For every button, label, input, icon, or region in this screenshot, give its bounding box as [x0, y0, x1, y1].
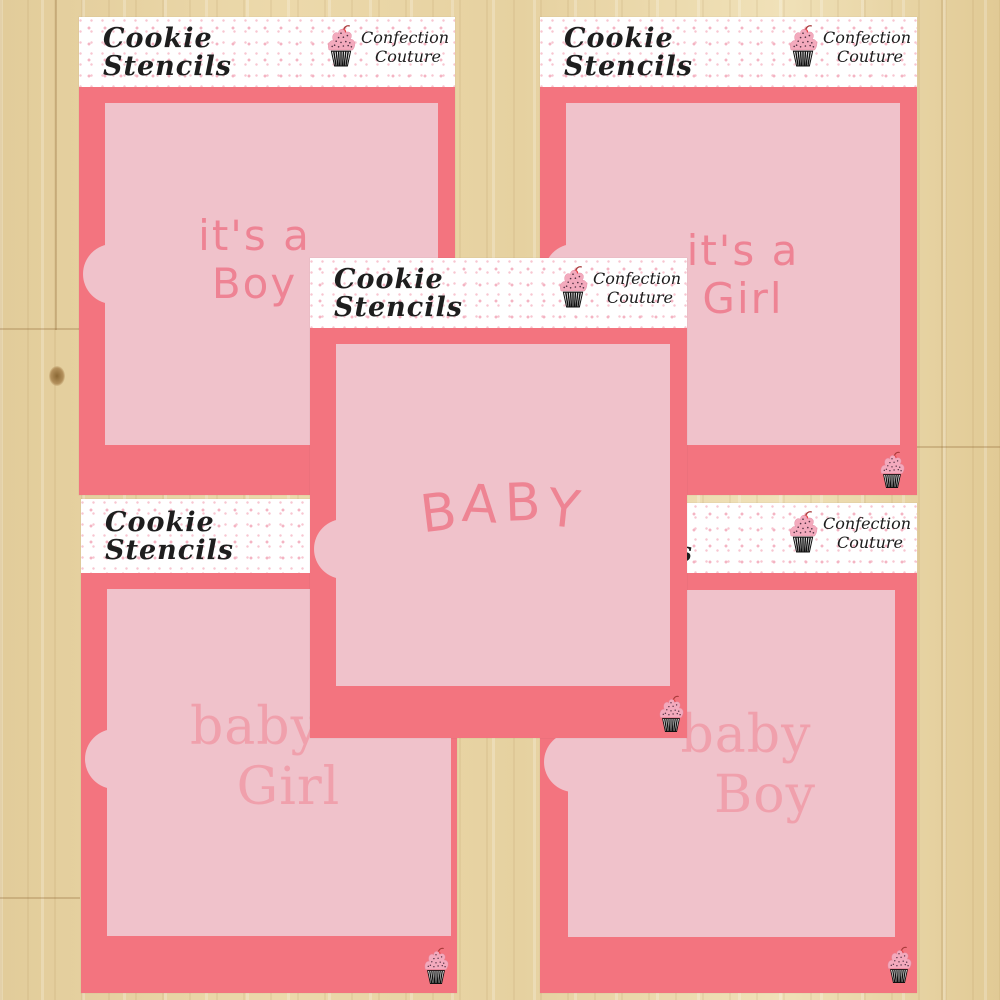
- brand-line-2: Stencils: [334, 294, 463, 322]
- brand-line-2: Stencils: [105, 537, 234, 565]
- cupcake-icon: [325, 22, 357, 70]
- logo-line-1: Confection: [593, 269, 681, 288]
- confection-couture-logo: Confection Couture: [325, 20, 449, 70]
- logo-line-1: Confection: [361, 28, 449, 47]
- stencil-design-text: BABY: [336, 480, 670, 536]
- design-line: BABY: [336, 480, 670, 536]
- brand-line-2: Stencils: [103, 53, 232, 81]
- stencil-package-baby: Cookie Stencils Con: [310, 258, 687, 738]
- package-header: Cookie Stencils Con: [540, 17, 917, 87]
- design-line: Boy: [598, 765, 932, 825]
- design-line: Girl: [122, 757, 455, 817]
- wood-seam: [55, 0, 57, 330]
- confection-couture-logo: Confection Couture: [787, 506, 911, 556]
- cupcake-icon: [557, 263, 589, 311]
- cupcake-icon: [878, 448, 906, 492]
- logo-text: Confection Couture: [823, 20, 911, 66]
- wood-seam: [0, 328, 80, 330]
- design-line: it's a: [88, 212, 421, 260]
- logo-line-1: Confection: [823, 514, 911, 533]
- logo-line-2: Couture: [823, 533, 911, 552]
- logo-text: Confection Couture: [593, 261, 681, 307]
- logo-line-2: Couture: [361, 47, 449, 66]
- brand-cookie-stencils: Cookie Stencils: [103, 25, 232, 81]
- package-header: Cookie Stencils Con: [310, 258, 687, 328]
- cupcake-icon: [885, 943, 913, 987]
- confection-couture-logo: Confection Couture: [557, 261, 681, 311]
- confection-couture-logo: Confection Couture: [787, 20, 911, 70]
- logo-text: Confection Couture: [823, 506, 911, 552]
- brand-cookie-stencils: Cookie Stencils: [564, 25, 693, 81]
- cupcake-icon: [657, 692, 685, 736]
- logo-line-2: Couture: [593, 288, 681, 307]
- cupcake-icon: [787, 508, 819, 556]
- brand-line-2: Stencils: [564, 53, 693, 81]
- brand-line-1: Cookie: [105, 509, 234, 537]
- brand-line-1: Cookie: [334, 266, 463, 294]
- wood-seam: [941, 0, 943, 1000]
- wood-seam: [915, 446, 1000, 448]
- wood-seam: [0, 897, 80, 899]
- wood-knot: [49, 366, 65, 386]
- logo-text: Confection Couture: [361, 20, 449, 66]
- brand-cookie-stencils: Cookie Stencils: [105, 509, 234, 565]
- brand-line-1: Cookie: [564, 25, 693, 53]
- brand-cookie-stencils: Cookie Stencils: [334, 266, 463, 322]
- package-header: Cookie Stencils Con: [79, 17, 455, 87]
- wood-background: Cookie Stencils Con: [0, 0, 1000, 1000]
- logo-line-1: Confection: [823, 28, 911, 47]
- cupcake-icon: [422, 944, 450, 988]
- cupcake-icon: [787, 22, 819, 70]
- logo-line-2: Couture: [823, 47, 911, 66]
- brand-line-1: Cookie: [103, 25, 232, 53]
